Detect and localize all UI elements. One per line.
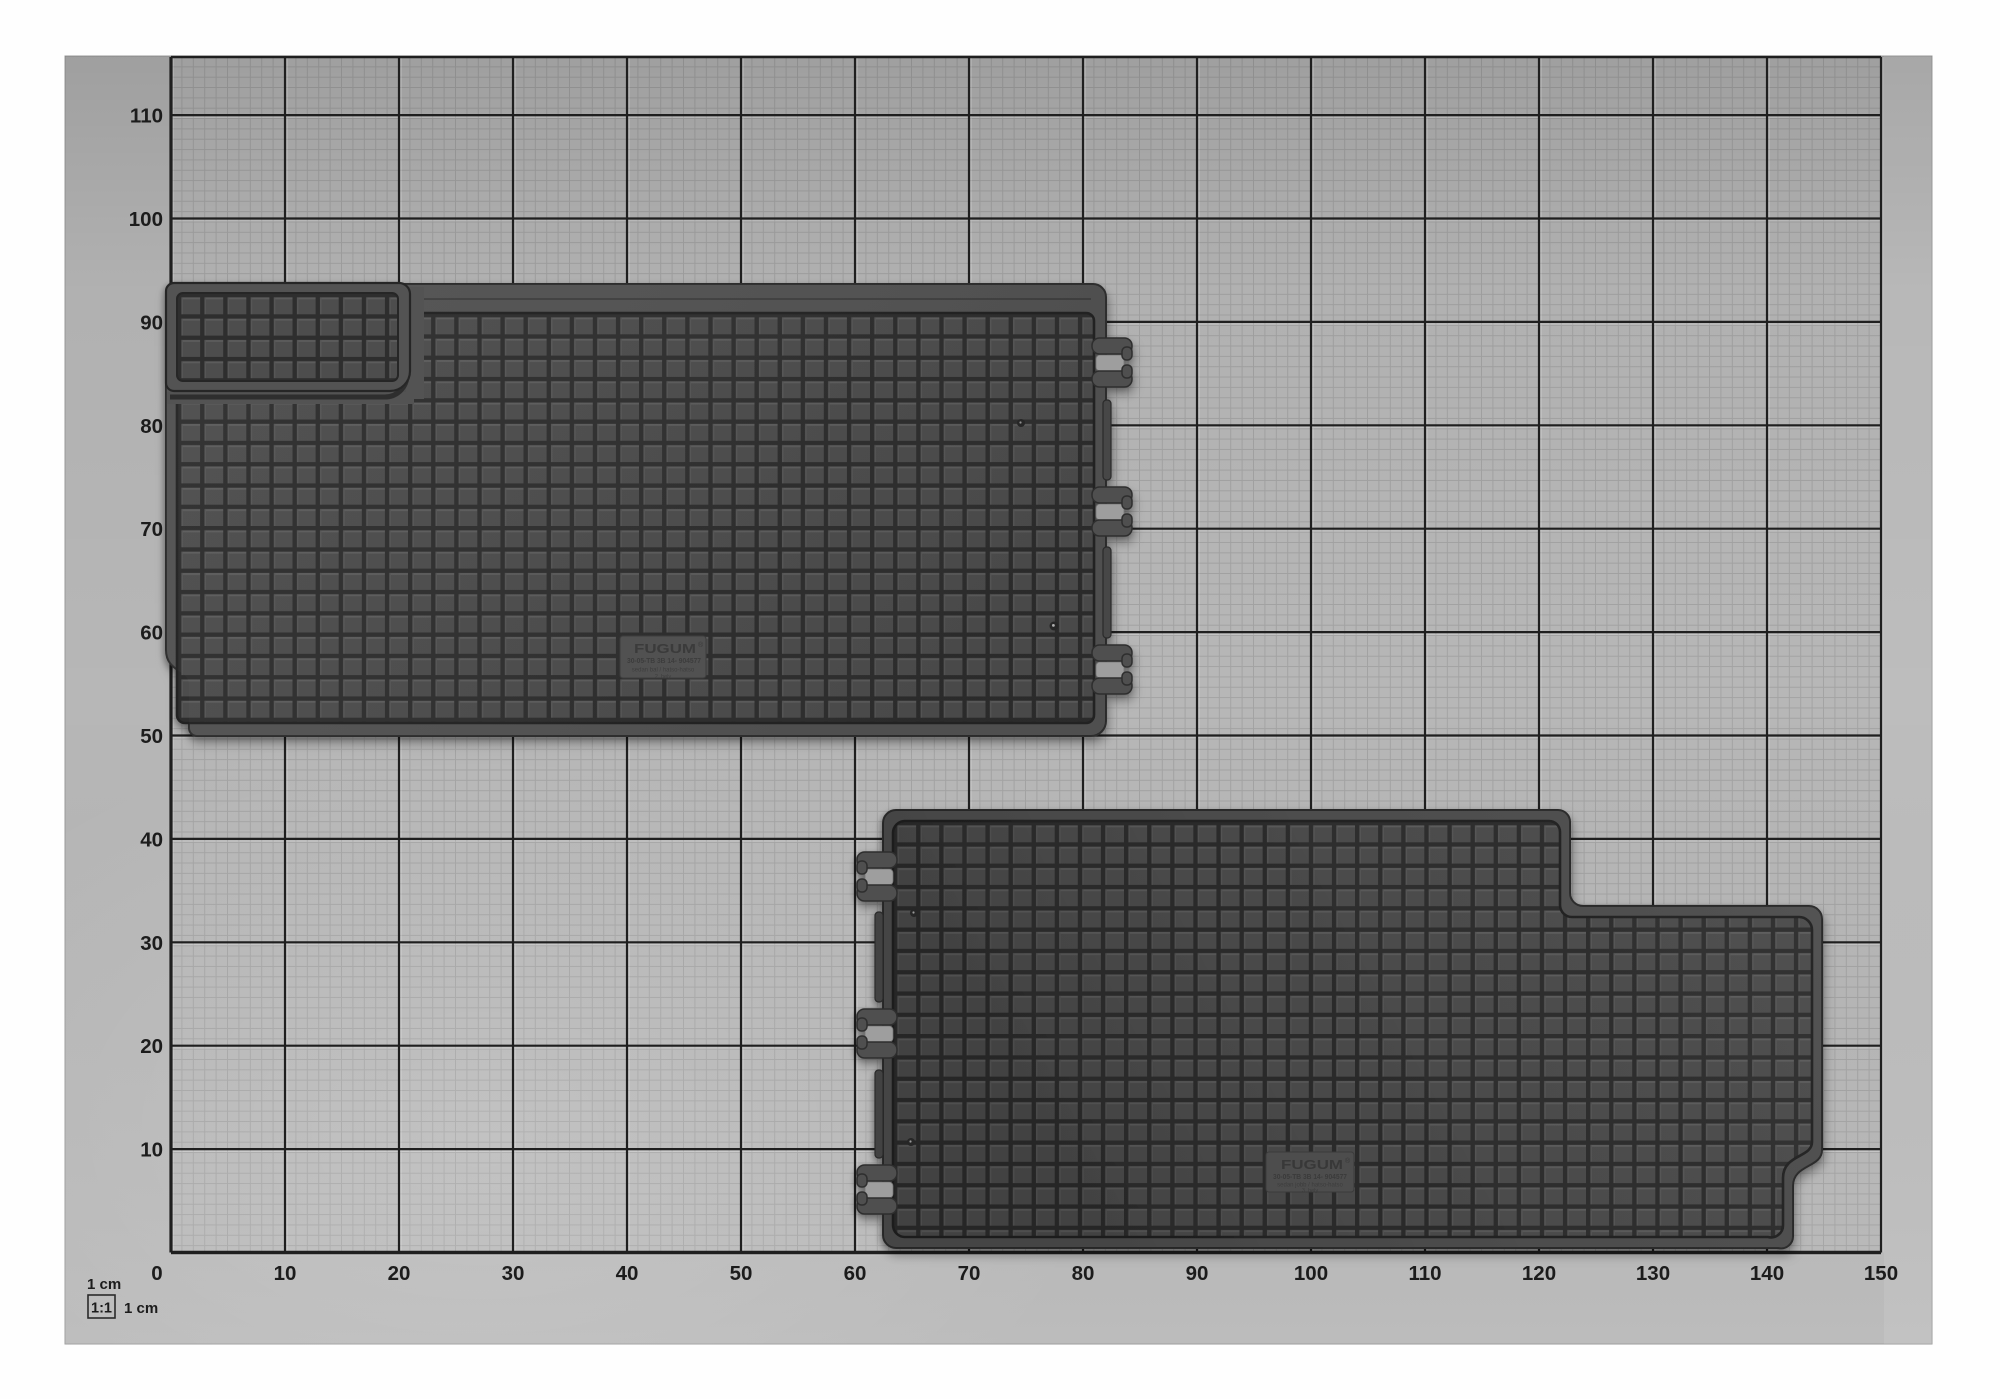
svg-text:20: 20 [388,1262,411,1285]
svg-text:10: 10 [140,1139,163,1162]
svg-text:®: ® [698,641,704,649]
svg-text:30-05-TB 3B 14- 904577: 30-05-TB 3B 14- 904577 [1273,1172,1347,1181]
svg-text:50: 50 [140,725,163,748]
svg-text:150: 150 [1864,1262,1898,1285]
svg-text:90: 90 [1186,1262,1209,1285]
svg-text:110: 110 [130,105,163,128]
svg-text:40: 40 [140,828,163,851]
svg-text:1 cm: 1 cm [87,1276,121,1293]
svg-text:110: 110 [1408,1262,1441,1285]
svg-text:20: 20 [140,1035,163,1058]
svg-text:®: ® [1345,1157,1351,1165]
svg-text:50: 50 [730,1262,753,1285]
svg-text:FUGUM: FUGUM [1281,1157,1343,1172]
svg-text:3. hely: 3. hely [1302,1188,1318,1194]
svg-text:100: 100 [129,208,163,231]
svg-text:30: 30 [502,1262,525,1285]
svg-text:60: 60 [844,1262,867,1285]
svg-text:130: 130 [1636,1262,1670,1285]
svg-text:70: 70 [958,1262,981,1285]
svg-text:140: 140 [1750,1262,1784,1285]
svg-text:90: 90 [140,311,163,334]
svg-text:60: 60 [140,622,163,645]
svg-text:40: 40 [616,1262,639,1285]
svg-text:120: 120 [1522,1262,1556,1285]
svg-text:FUGUM: FUGUM [634,641,696,656]
svg-text:100: 100 [1294,1262,1328,1285]
svg-text:30-05-TB 3B 14- 904577: 30-05-TB 3B 14- 904577 [627,656,701,665]
svg-text:70: 70 [140,518,163,541]
svg-text:80: 80 [140,415,163,438]
svg-text:80: 80 [1072,1262,1095,1285]
svg-text:30: 30 [140,932,163,955]
svg-text:1 cm: 1 cm [124,1300,158,1317]
svg-text:sedan bal / hatso-hatso: sedan bal / hatso-hatso [632,668,695,674]
svg-text:2. hely: 2. hely [655,674,671,680]
svg-text:1:1: 1:1 [91,1301,112,1317]
svg-text:10: 10 [274,1262,297,1285]
svg-text:0: 0 [151,1262,162,1285]
